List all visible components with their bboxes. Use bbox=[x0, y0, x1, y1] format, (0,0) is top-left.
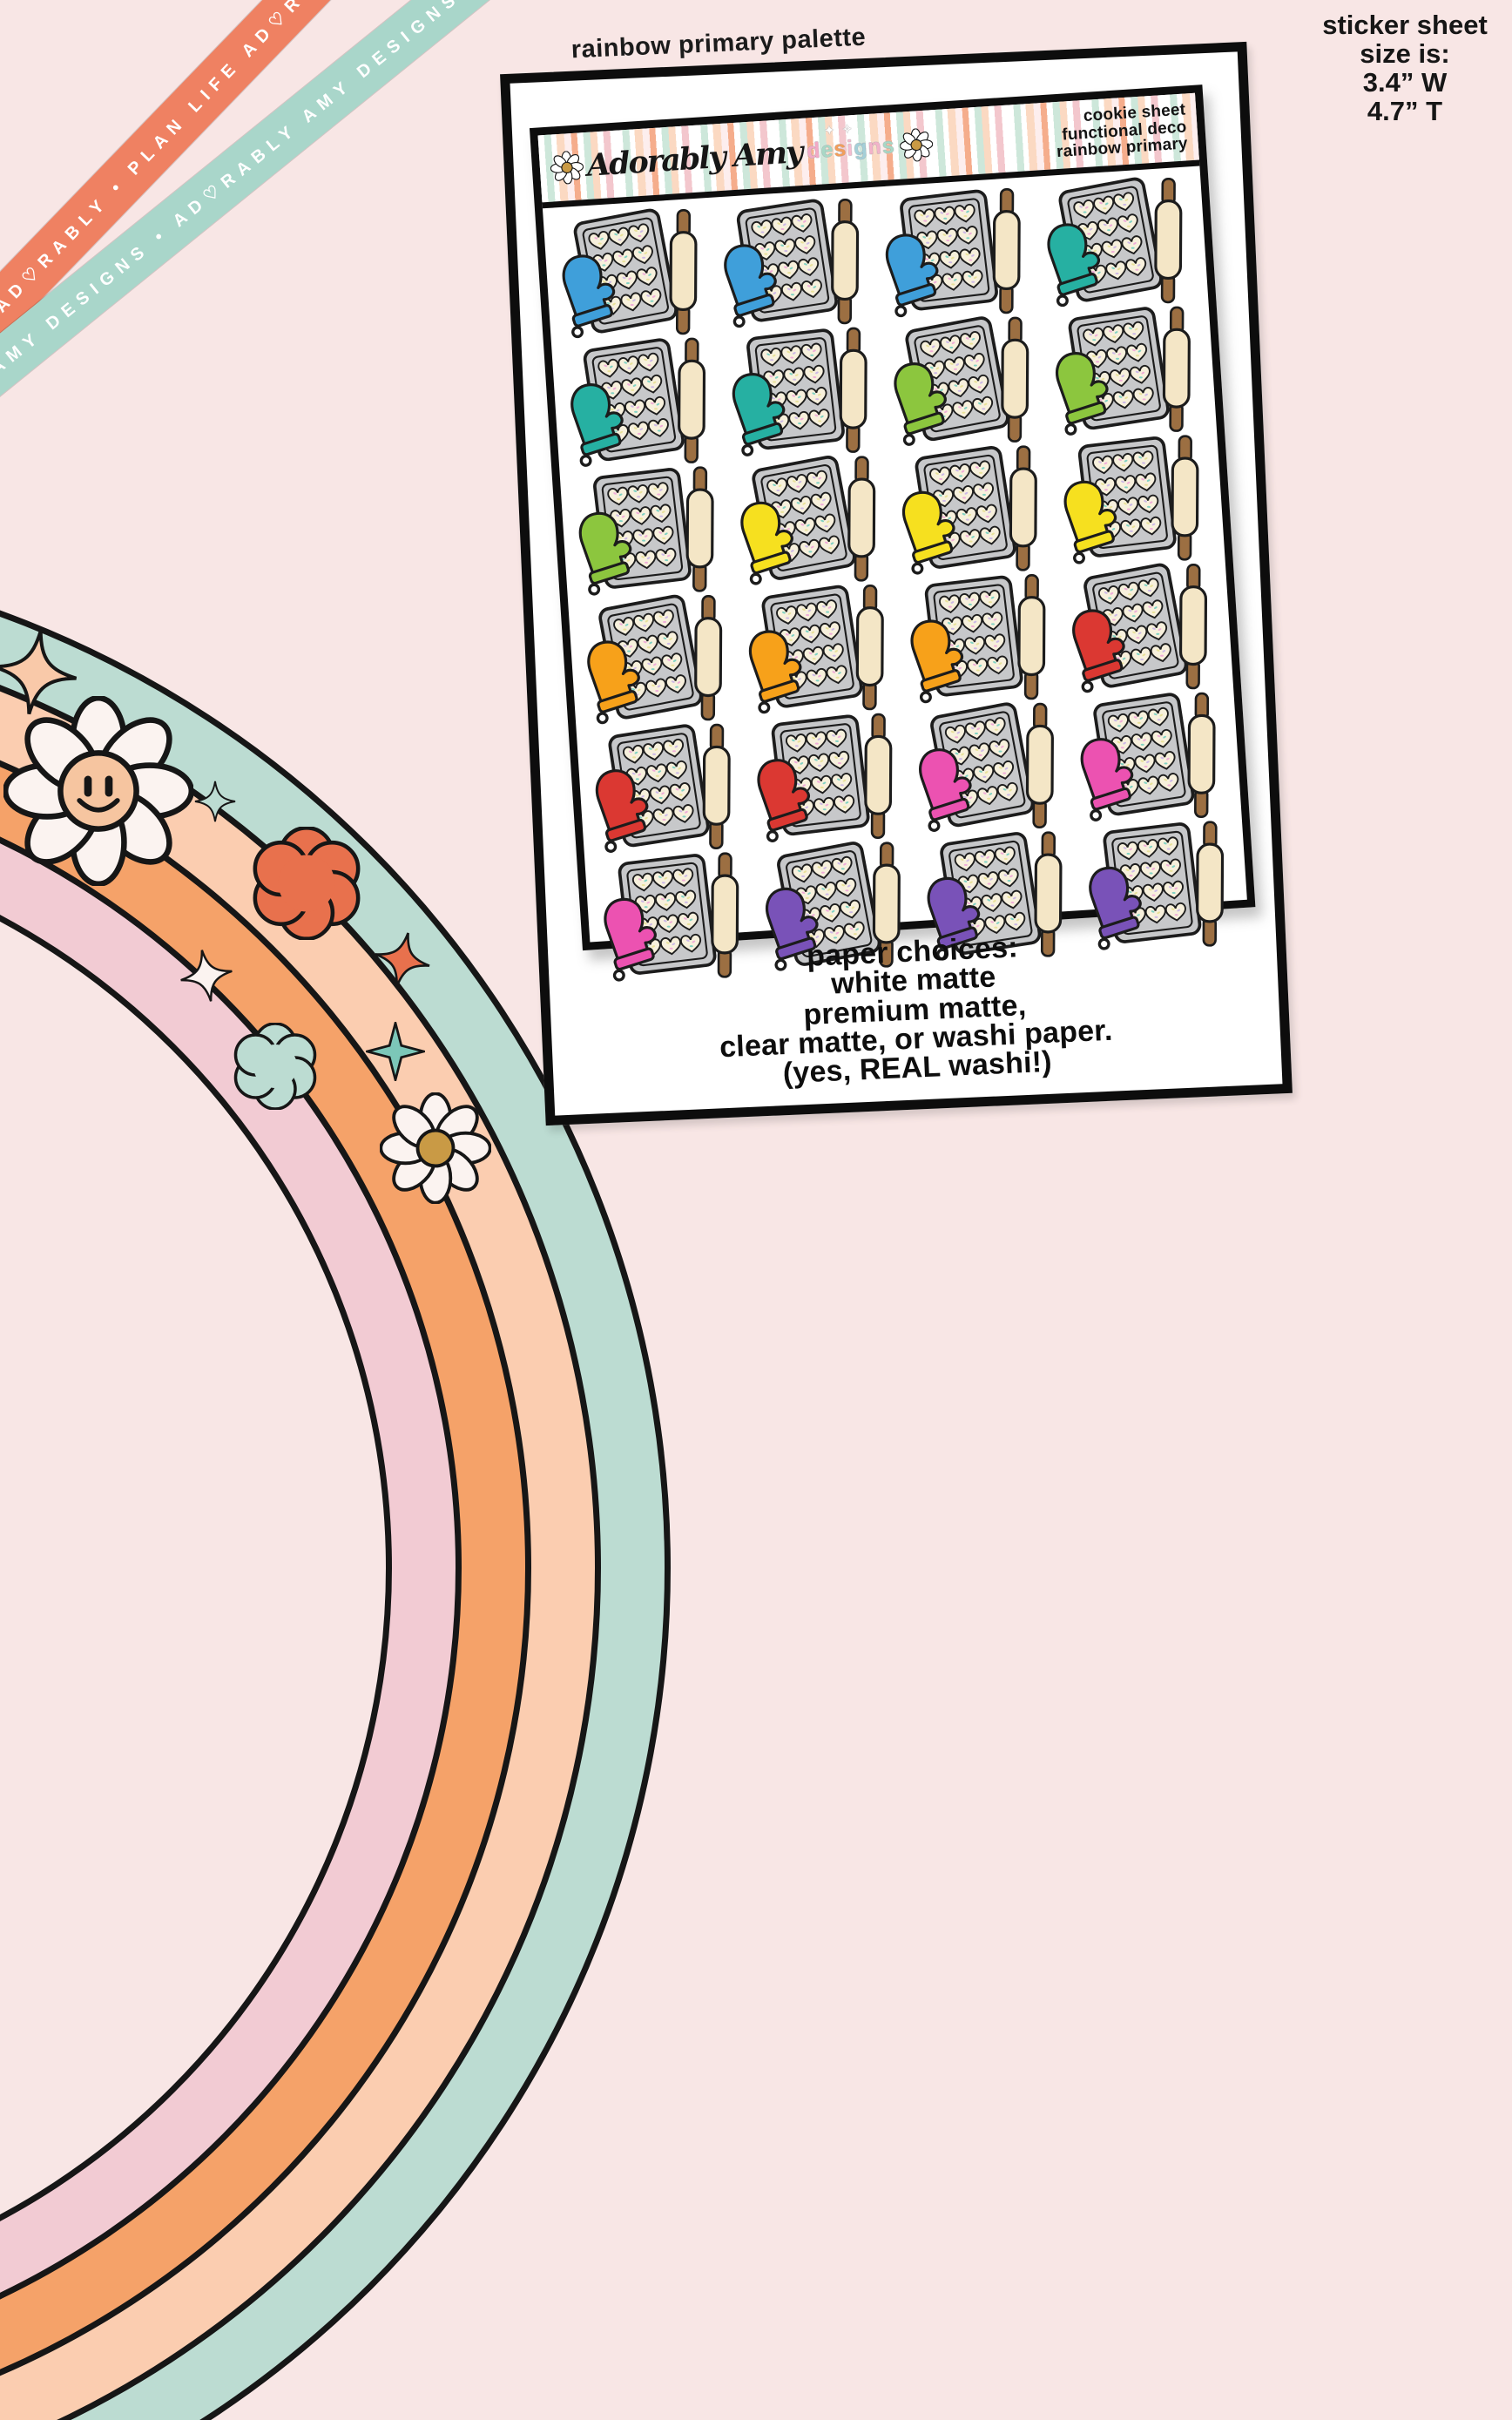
deco-sparkle-icon bbox=[175, 944, 238, 1007]
sticker-cookie-sheet bbox=[888, 441, 1058, 580]
daisy-icon bbox=[550, 150, 584, 185]
deco-flower6-icon bbox=[250, 827, 363, 940]
deco-daisy-icon bbox=[380, 1092, 491, 1204]
sticker-sheet-size-note: sticker sheetsize is:3.4” W4.7” T bbox=[1261, 10, 1512, 126]
deco-sparkle-icon bbox=[194, 781, 236, 822]
sticker-cookie-sheet bbox=[1066, 687, 1236, 827]
deco-flower6-icon bbox=[232, 1023, 319, 1110]
sticker-cookie-sheet bbox=[582, 719, 752, 858]
sticker-cookie-sheet bbox=[557, 334, 726, 473]
sticker-cookie-sheet bbox=[743, 708, 913, 848]
designs-letter: s bbox=[881, 133, 896, 159]
sticker-cookie-sheet bbox=[896, 570, 1066, 709]
paper-choices-note: paper choices:white mattepremium matte,c… bbox=[548, 922, 1281, 1098]
product-card: Adorably Amy ✦ ✧ designs cookie sheetfun… bbox=[500, 42, 1293, 1126]
sticker-grid bbox=[543, 166, 1247, 943]
sticker-cookie-sheet bbox=[565, 462, 735, 601]
size-note-line: size is: bbox=[1261, 39, 1512, 68]
sparkle-icon: ✦ ✧ bbox=[824, 122, 854, 138]
sticker-cookie-sheet bbox=[573, 591, 743, 730]
deco-star4-icon bbox=[366, 1022, 425, 1081]
sticker-cookie-sheet bbox=[735, 580, 905, 720]
brand-designs-word: ✦ ✧ designs bbox=[806, 133, 895, 164]
sticker-cookie-sheet bbox=[872, 184, 1042, 323]
size-note-line: sticker sheet bbox=[1261, 10, 1512, 39]
sticker-cookie-sheet bbox=[905, 698, 1075, 837]
sticker-cookie-sheet bbox=[1033, 173, 1203, 313]
designs-letter: n bbox=[867, 134, 883, 159]
sticker-sheet: Adorably Amy ✦ ✧ designs cookie sheetfun… bbox=[530, 84, 1255, 950]
sticker-cookie-sheet bbox=[548, 205, 718, 344]
sticker-cookie-sheet bbox=[719, 323, 888, 463]
sheet-title: cookie sheetfunctional decorainbow prima… bbox=[1054, 102, 1188, 161]
deco-daisy-smiley-icon bbox=[3, 696, 193, 886]
size-note-line: 4.7” T bbox=[1261, 97, 1512, 125]
daisy-icon bbox=[899, 127, 934, 162]
sticker-cookie-sheet bbox=[880, 313, 1050, 452]
sticker-cookie-sheet bbox=[1042, 302, 1212, 442]
sticker-cookie-sheet bbox=[1058, 559, 1228, 699]
sticker-cookie-sheet bbox=[710, 194, 880, 334]
sticker-cookie-sheet bbox=[1050, 430, 1219, 570]
deco-sparkle-icon bbox=[368, 926, 436, 994]
brand-script-logo: Adorably Amy bbox=[586, 134, 803, 184]
sticker-cookie-sheet bbox=[726, 451, 896, 591]
size-note-line: 3.4” W bbox=[1261, 68, 1512, 97]
